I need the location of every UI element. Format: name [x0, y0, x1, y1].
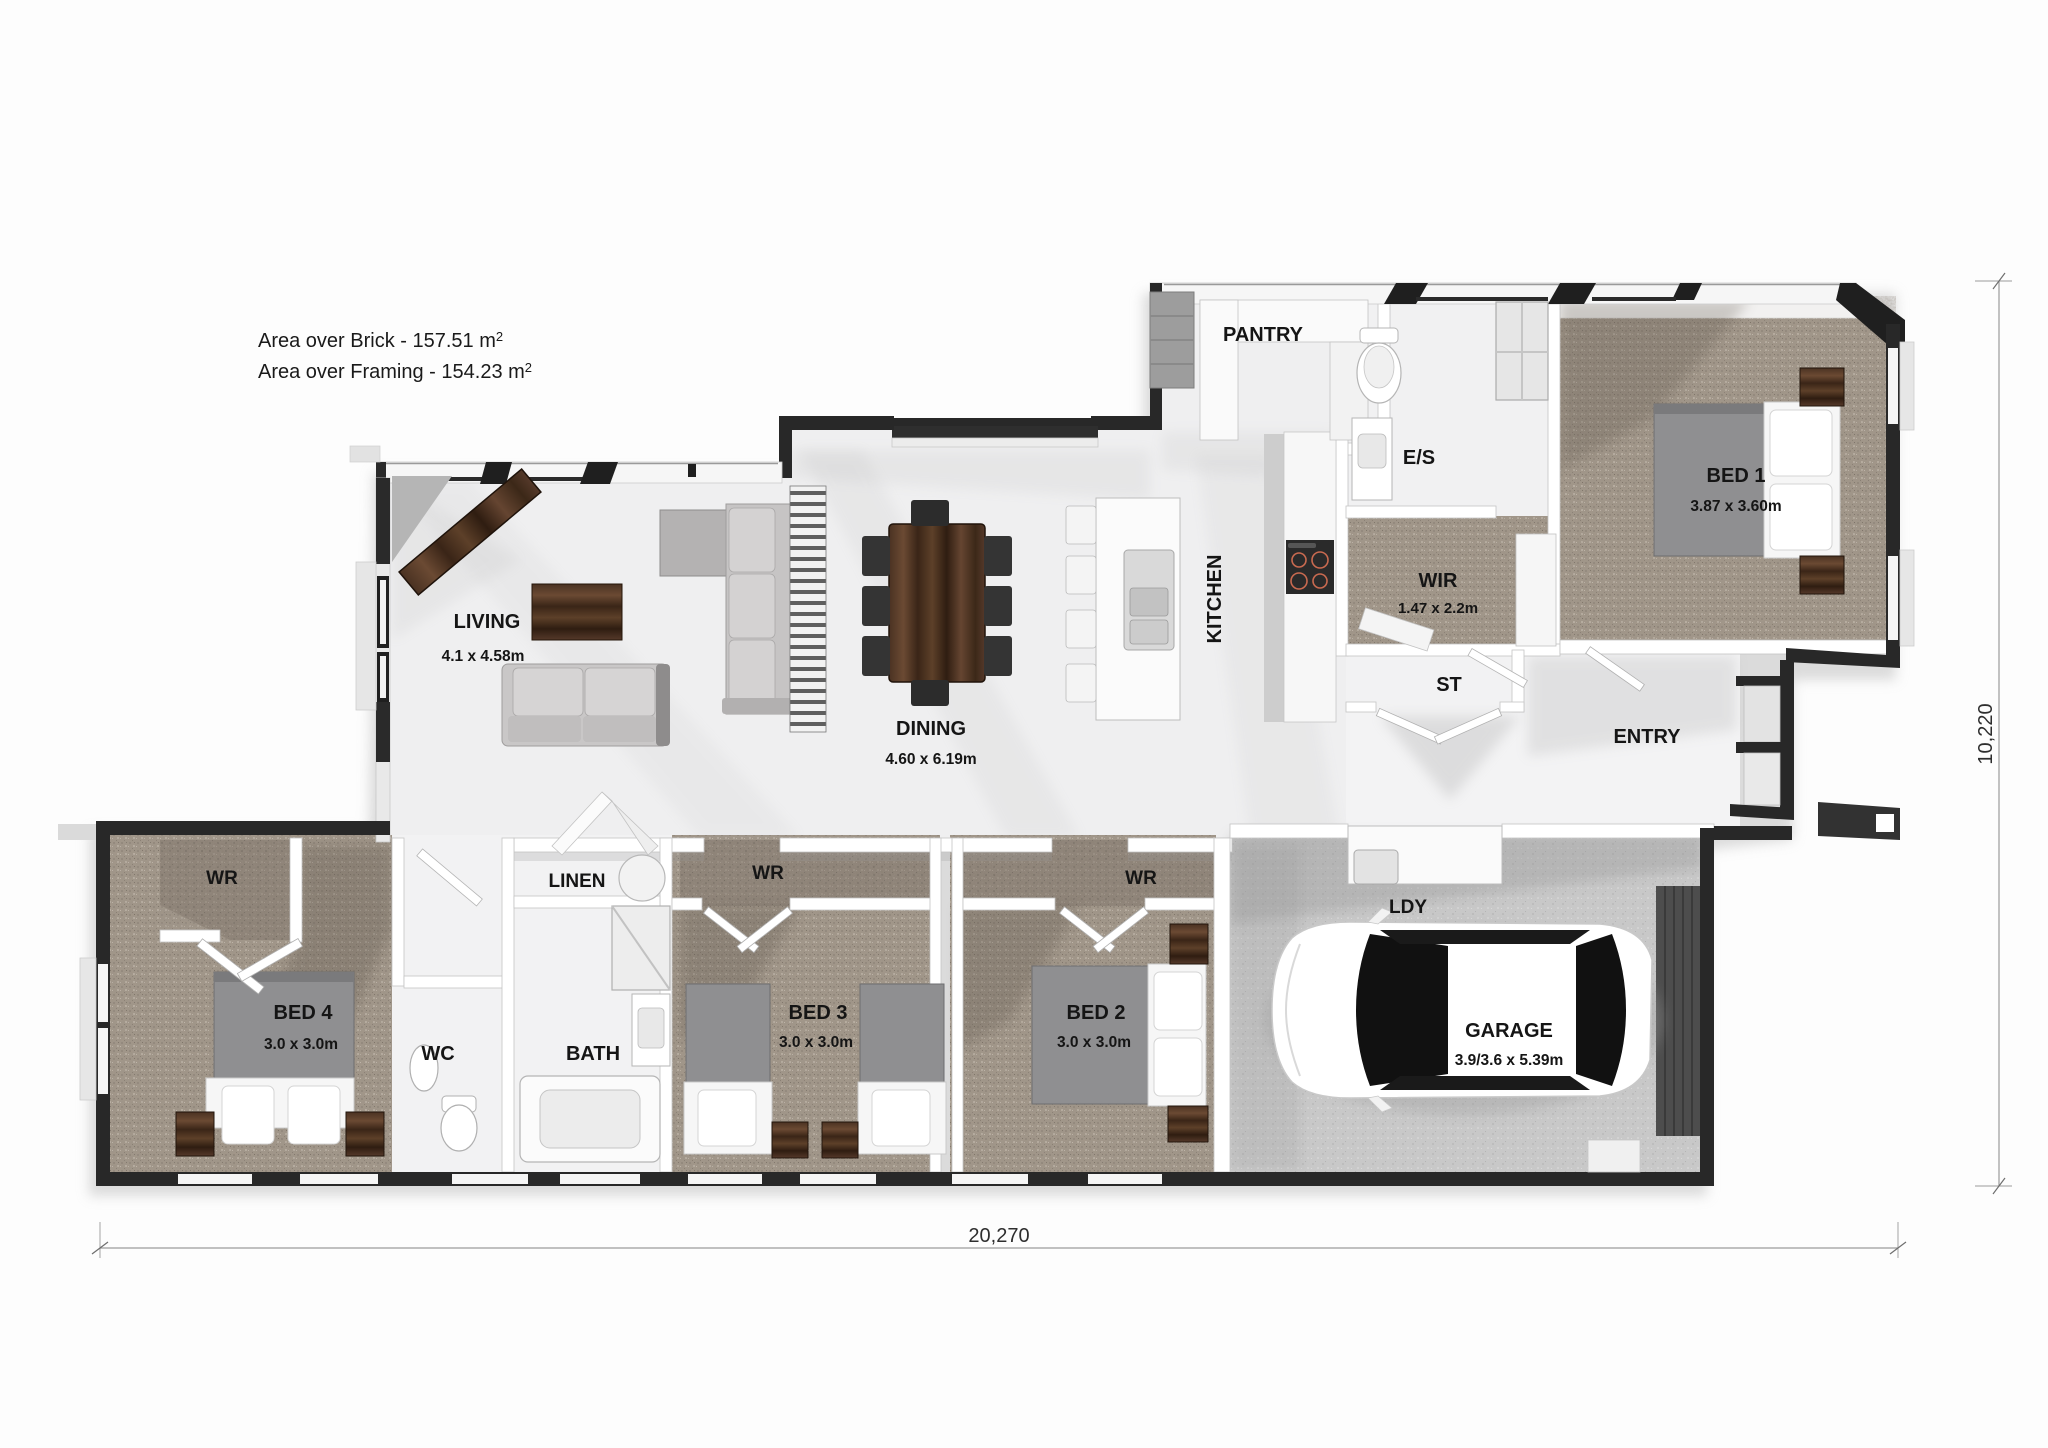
svg-text:4.60 x 6.19m: 4.60 x 6.19m	[885, 751, 976, 768]
svg-text:BED 1: BED 1	[1707, 465, 1766, 487]
svg-text:BED 2: BED 2	[1067, 1002, 1126, 1024]
svg-text:4.1 x 4.58m: 4.1 x 4.58m	[442, 648, 525, 665]
svg-text:ST: ST	[1436, 674, 1462, 696]
svg-text:LDY: LDY	[1389, 897, 1427, 918]
svg-text:LIVING: LIVING	[454, 611, 521, 633]
svg-text:PANTRY: PANTRY	[1223, 324, 1304, 346]
svg-text:1.47 x 2.2m: 1.47 x 2.2m	[1398, 600, 1478, 617]
svg-text:WR: WR	[206, 868, 238, 889]
svg-text:Area over Framing - 154.23 m2: Area over Framing - 154.23 m2	[258, 360, 532, 383]
svg-text:WR: WR	[1125, 868, 1157, 889]
svg-text:GARAGE: GARAGE	[1465, 1020, 1553, 1042]
svg-text:3.0 x 3.0m: 3.0 x 3.0m	[1057, 1034, 1131, 1051]
svg-text:20,270: 20,270	[968, 1225, 1029, 1247]
svg-text:3.9/3.6 x 5.39m: 3.9/3.6 x 5.39m	[1455, 1052, 1564, 1069]
svg-text:ENTRY: ENTRY	[1613, 726, 1681, 748]
svg-text:Area over Brick - 157.51 m2: Area over Brick - 157.51 m2	[258, 329, 503, 352]
svg-text:BED 4: BED 4	[274, 1002, 334, 1024]
svg-text:LINEN: LINEN	[549, 871, 606, 892]
svg-text:WC: WC	[421, 1043, 454, 1065]
svg-text:WIR: WIR	[1419, 570, 1458, 592]
svg-text:DINING: DINING	[896, 718, 966, 740]
svg-text:E/S: E/S	[1403, 447, 1435, 469]
svg-text:10,220: 10,220	[1975, 703, 1997, 764]
svg-text:BATH: BATH	[566, 1043, 620, 1065]
svg-text:3.0 x 3.0m: 3.0 x 3.0m	[779, 1034, 853, 1051]
svg-text:BED 3: BED 3	[789, 1002, 848, 1024]
svg-text:WR: WR	[752, 863, 784, 884]
svg-text:3.0 x 3.0m: 3.0 x 3.0m	[264, 1036, 338, 1053]
svg-text:KITCHEN: KITCHEN	[1204, 555, 1226, 644]
svg-text:3.87 x 3.60m: 3.87 x 3.60m	[1690, 498, 1781, 515]
